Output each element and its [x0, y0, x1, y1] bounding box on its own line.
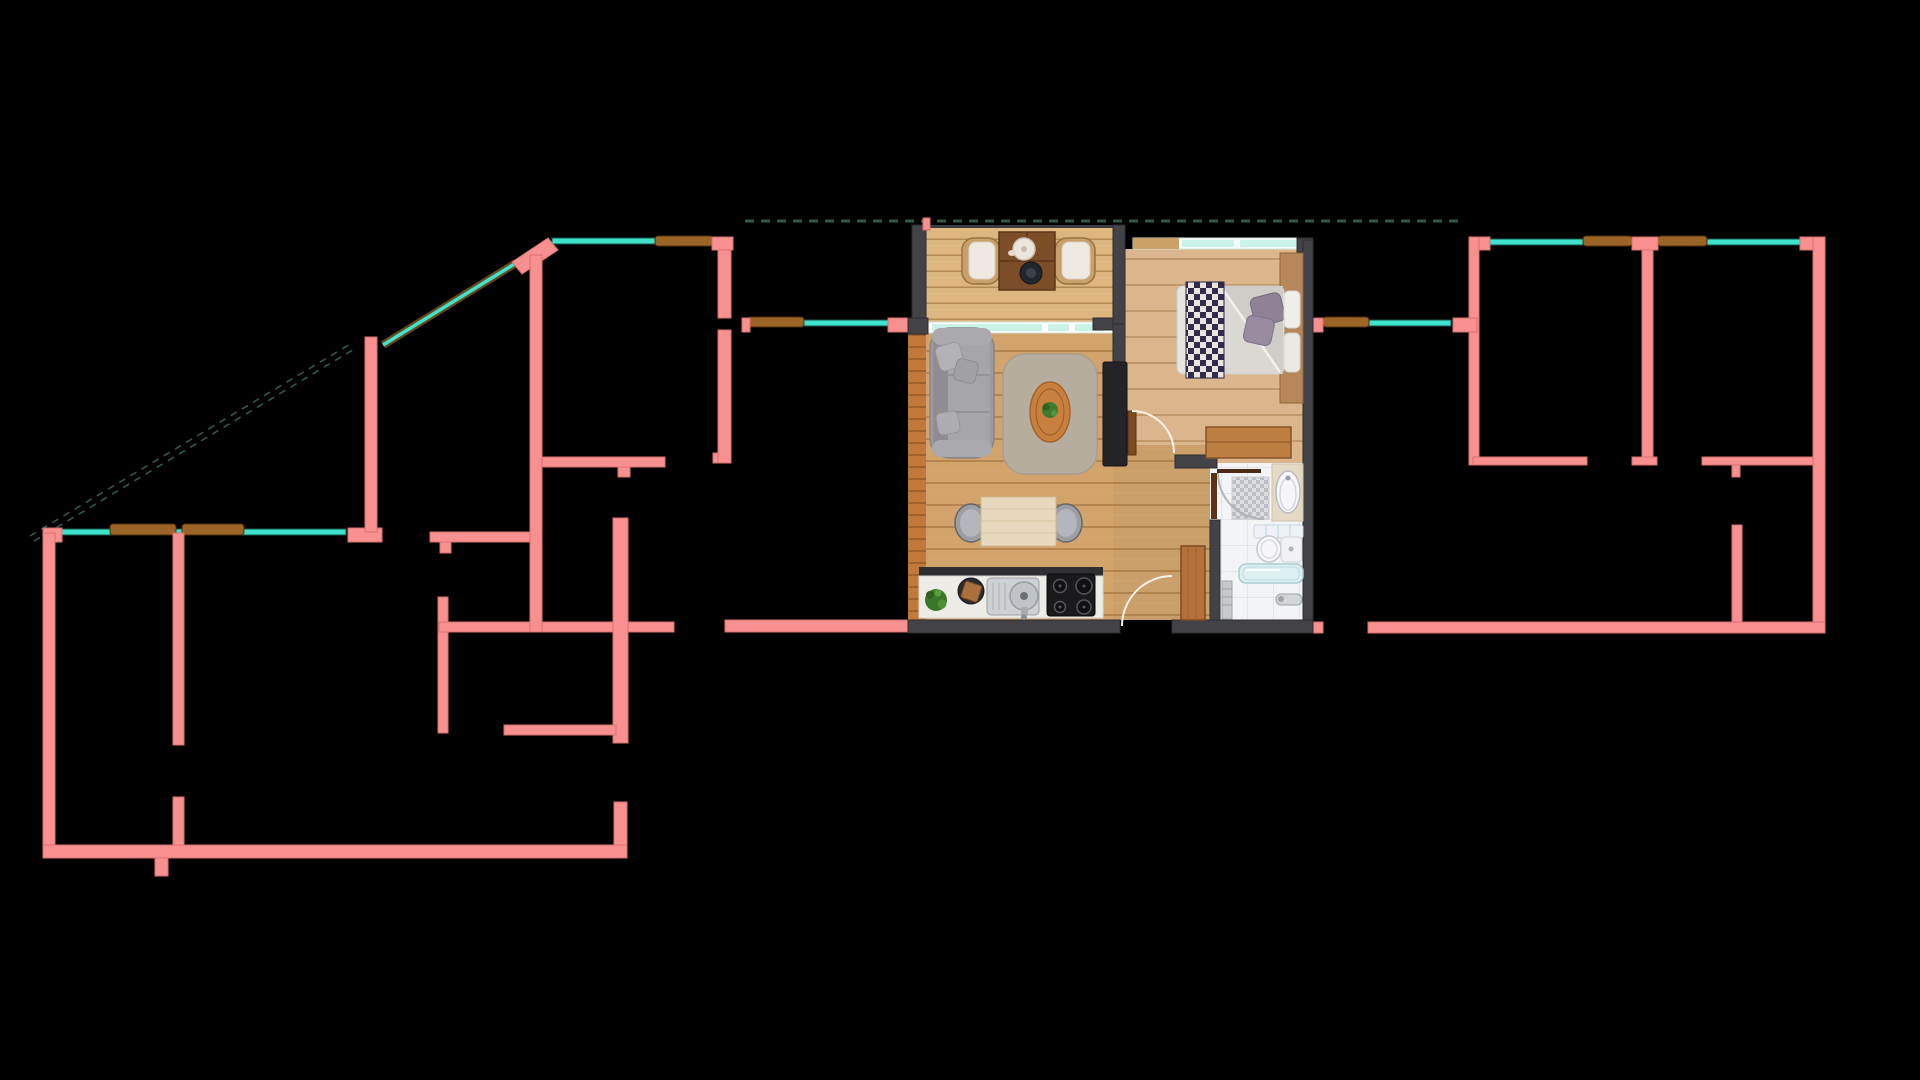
- teapot-lid: [1021, 246, 1027, 252]
- balcony-furniture: [962, 232, 1095, 290]
- window-glass: [804, 320, 889, 326]
- wall: [439, 622, 674, 632]
- bedroom-window-lintel: [1133, 238, 1179, 249]
- wall: [1732, 465, 1740, 477]
- bedroom-door-leaf: [1128, 411, 1136, 455]
- bed-pillow-mauve: [1242, 314, 1275, 346]
- wall: [430, 532, 530, 542]
- balcony-chair-right-cushion: [1062, 242, 1090, 279]
- wall-dark: [1093, 318, 1113, 330]
- balcony-window-glass: [1048, 324, 1069, 331]
- wall: [1813, 237, 1825, 633]
- wall-dark: [908, 318, 928, 334]
- window-sill: [182, 524, 244, 535]
- bed-pillow-white: [1284, 333, 1300, 372]
- balcony-top-edge: [926, 225, 1115, 228]
- window-sill: [1323, 317, 1369, 327]
- window-glass: [1490, 239, 1583, 245]
- cooktop-burner-dot: [1059, 585, 1062, 588]
- wall: [1473, 457, 1587, 465]
- dining-chair-cushion: [960, 509, 982, 537]
- wall: [440, 542, 451, 553]
- shower-screen: [1217, 469, 1261, 473]
- window-sill: [748, 317, 804, 327]
- wall-dark: [1113, 225, 1125, 324]
- balcony-chair-left-cushion: [969, 242, 995, 279]
- kitchen-sink-drain: [1020, 592, 1028, 600]
- window-sill: [655, 236, 713, 246]
- wall: [530, 255, 542, 632]
- floor-plan-stage: [0, 0, 1920, 1080]
- wall: [542, 457, 665, 467]
- wall: [742, 318, 750, 332]
- window-glass: [1369, 320, 1451, 326]
- wall: [712, 237, 733, 250]
- kitchen-plant-leaf: [935, 590, 942, 597]
- coffee-table-plant-leaf: [1043, 404, 1050, 411]
- wall: [718, 250, 731, 318]
- wall: [173, 533, 184, 745]
- sofa-armrest-top: [932, 328, 992, 345]
- kitchen: [919, 567, 1103, 620]
- window-sill: [1658, 236, 1707, 246]
- wall: [718, 330, 731, 463]
- teapot-spout: [1008, 250, 1016, 256]
- kettle-lid: [1026, 268, 1036, 278]
- wall-dark: [912, 225, 926, 332]
- tv: [1103, 362, 1127, 466]
- wall: [43, 845, 627, 858]
- bedroom-window-glass: [1240, 240, 1296, 247]
- toilet-flush-button: [1289, 547, 1294, 552]
- wall: [1732, 525, 1742, 622]
- window-glass: [552, 238, 658, 244]
- wall: [1313, 622, 1323, 633]
- wall-dark: [1172, 620, 1313, 633]
- window-glass: [1707, 239, 1800, 245]
- sofa-pillow: [935, 410, 960, 435]
- cooktop-burner-dot: [1083, 606, 1086, 609]
- wall: [614, 802, 627, 845]
- wall: [438, 597, 448, 733]
- bathroom-door-leaf: [1211, 473, 1217, 519]
- bathroom-sink-faucet: [1286, 476, 1291, 481]
- bed-throw-checkered: [1186, 282, 1224, 378]
- window-sill: [1583, 236, 1632, 246]
- wall: [173, 797, 184, 845]
- coffee-table-plant-leaf: [1051, 410, 1057, 416]
- wall: [365, 337, 377, 532]
- wall-dark: [908, 620, 1120, 633]
- entrance-door-leaf: [1181, 546, 1205, 620]
- wall: [1632, 457, 1657, 465]
- wall: [1632, 237, 1658, 250]
- wall-pink-tick: [923, 218, 930, 230]
- bath-handle-knob: [1278, 596, 1284, 602]
- shower-mat: [1232, 477, 1269, 519]
- wall: [618, 467, 630, 477]
- wall: [1702, 457, 1813, 465]
- wall: [1453, 318, 1477, 332]
- wall: [1368, 622, 1825, 633]
- towel-rail: [1222, 581, 1232, 619]
- wall: [155, 858, 168, 876]
- wall-dark: [1303, 240, 1313, 630]
- floor-plan: [0, 0, 1920, 1080]
- kitchen-plant-leaf: [938, 600, 947, 609]
- kitchen-plant-leaf: [926, 591, 934, 599]
- kitchen-faucet-head: [1021, 614, 1027, 620]
- sofa-pillow: [953, 358, 980, 385]
- wall: [725, 620, 910, 632]
- sofa-armrest-bottom: [932, 440, 992, 457]
- bed-pillow-white: [1284, 291, 1300, 328]
- wall: [1312, 318, 1323, 332]
- wall: [504, 725, 616, 735]
- wall: [43, 533, 55, 845]
- dining-chair-cushion: [1055, 509, 1077, 537]
- wall: [1469, 237, 1479, 465]
- wall-dark: [1210, 520, 1220, 623]
- cooktop-burner-dot: [1059, 606, 1062, 609]
- wall: [613, 518, 628, 743]
- window-sill: [110, 524, 176, 535]
- cooktop-burner-dot: [1083, 585, 1086, 588]
- bedroom-window-glass: [1182, 240, 1234, 247]
- wall: [1642, 250, 1653, 457]
